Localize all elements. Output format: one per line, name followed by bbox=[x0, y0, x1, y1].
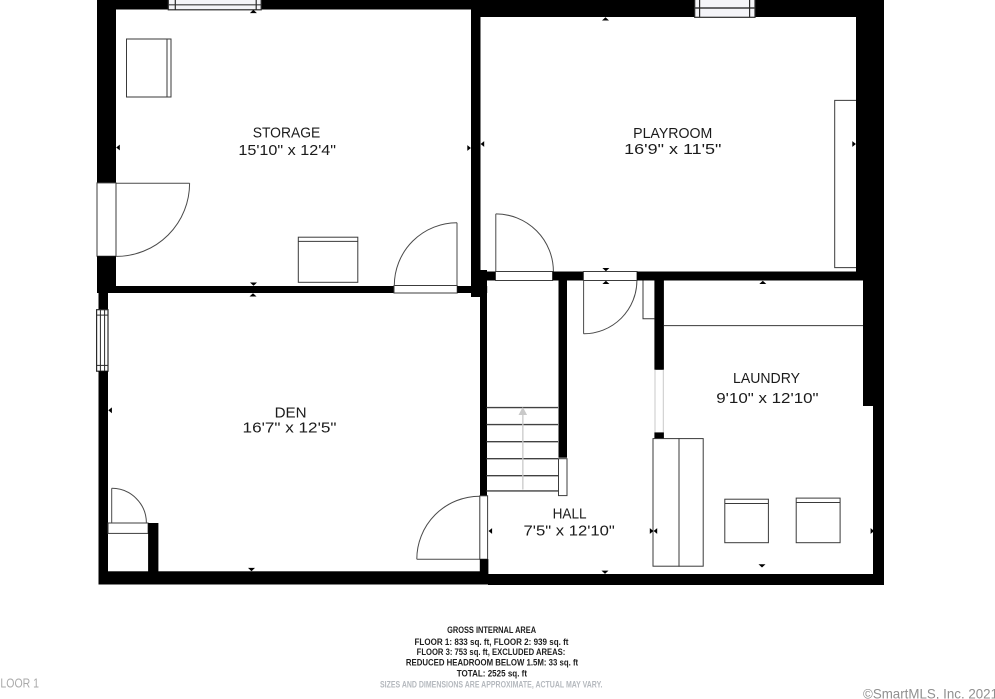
svg-text:HALL: HALL bbox=[553, 505, 587, 522]
svg-text:©SmartMLS, Inc. 2021: ©SmartMLS, Inc. 2021 bbox=[863, 686, 995, 699]
svg-text:GROSS INTERNAL AREA: GROSS INTERNAL AREA bbox=[447, 625, 536, 636]
svg-text:7'5" x 12'10": 7'5" x 12'10" bbox=[524, 524, 615, 540]
svg-text:SIZES AND DIMENSIONS ARE APPRO: SIZES AND DIMENSIONS ARE APPROXIMATE, AC… bbox=[380, 679, 602, 690]
svg-text:PLAYROOM: PLAYROOM bbox=[633, 125, 712, 142]
svg-text:9'10" x 12'10": 9'10" x 12'10" bbox=[716, 391, 818, 407]
svg-text:15'10" x 12'4": 15'10" x 12'4" bbox=[238, 143, 336, 159]
svg-text:16'7" x 12'5": 16'7" x 12'5" bbox=[243, 421, 337, 437]
svg-text:16'9" x 11'5": 16'9" x 11'5" bbox=[624, 142, 721, 158]
svg-text:DEN: DEN bbox=[275, 404, 307, 421]
svg-text:FLOOR 1: FLOOR 1 bbox=[0, 676, 39, 690]
svg-text:REDUCED HEADROOM BELOW 1.5M: 3: REDUCED HEADROOM BELOW 1.5M: 33 sq. ft bbox=[406, 658, 579, 669]
svg-text:TOTAL: 2525 sq. ft: TOTAL: 2525 sq. ft bbox=[457, 669, 528, 680]
svg-text:LAUNDRY: LAUNDRY bbox=[733, 370, 800, 387]
svg-text:STORAGE: STORAGE bbox=[253, 124, 321, 141]
svg-text:FLOOR 3: 753 sq. ft, EXCLUDED: FLOOR 3: 753 sq. ft, EXCLUDED AREAS: bbox=[417, 647, 566, 658]
